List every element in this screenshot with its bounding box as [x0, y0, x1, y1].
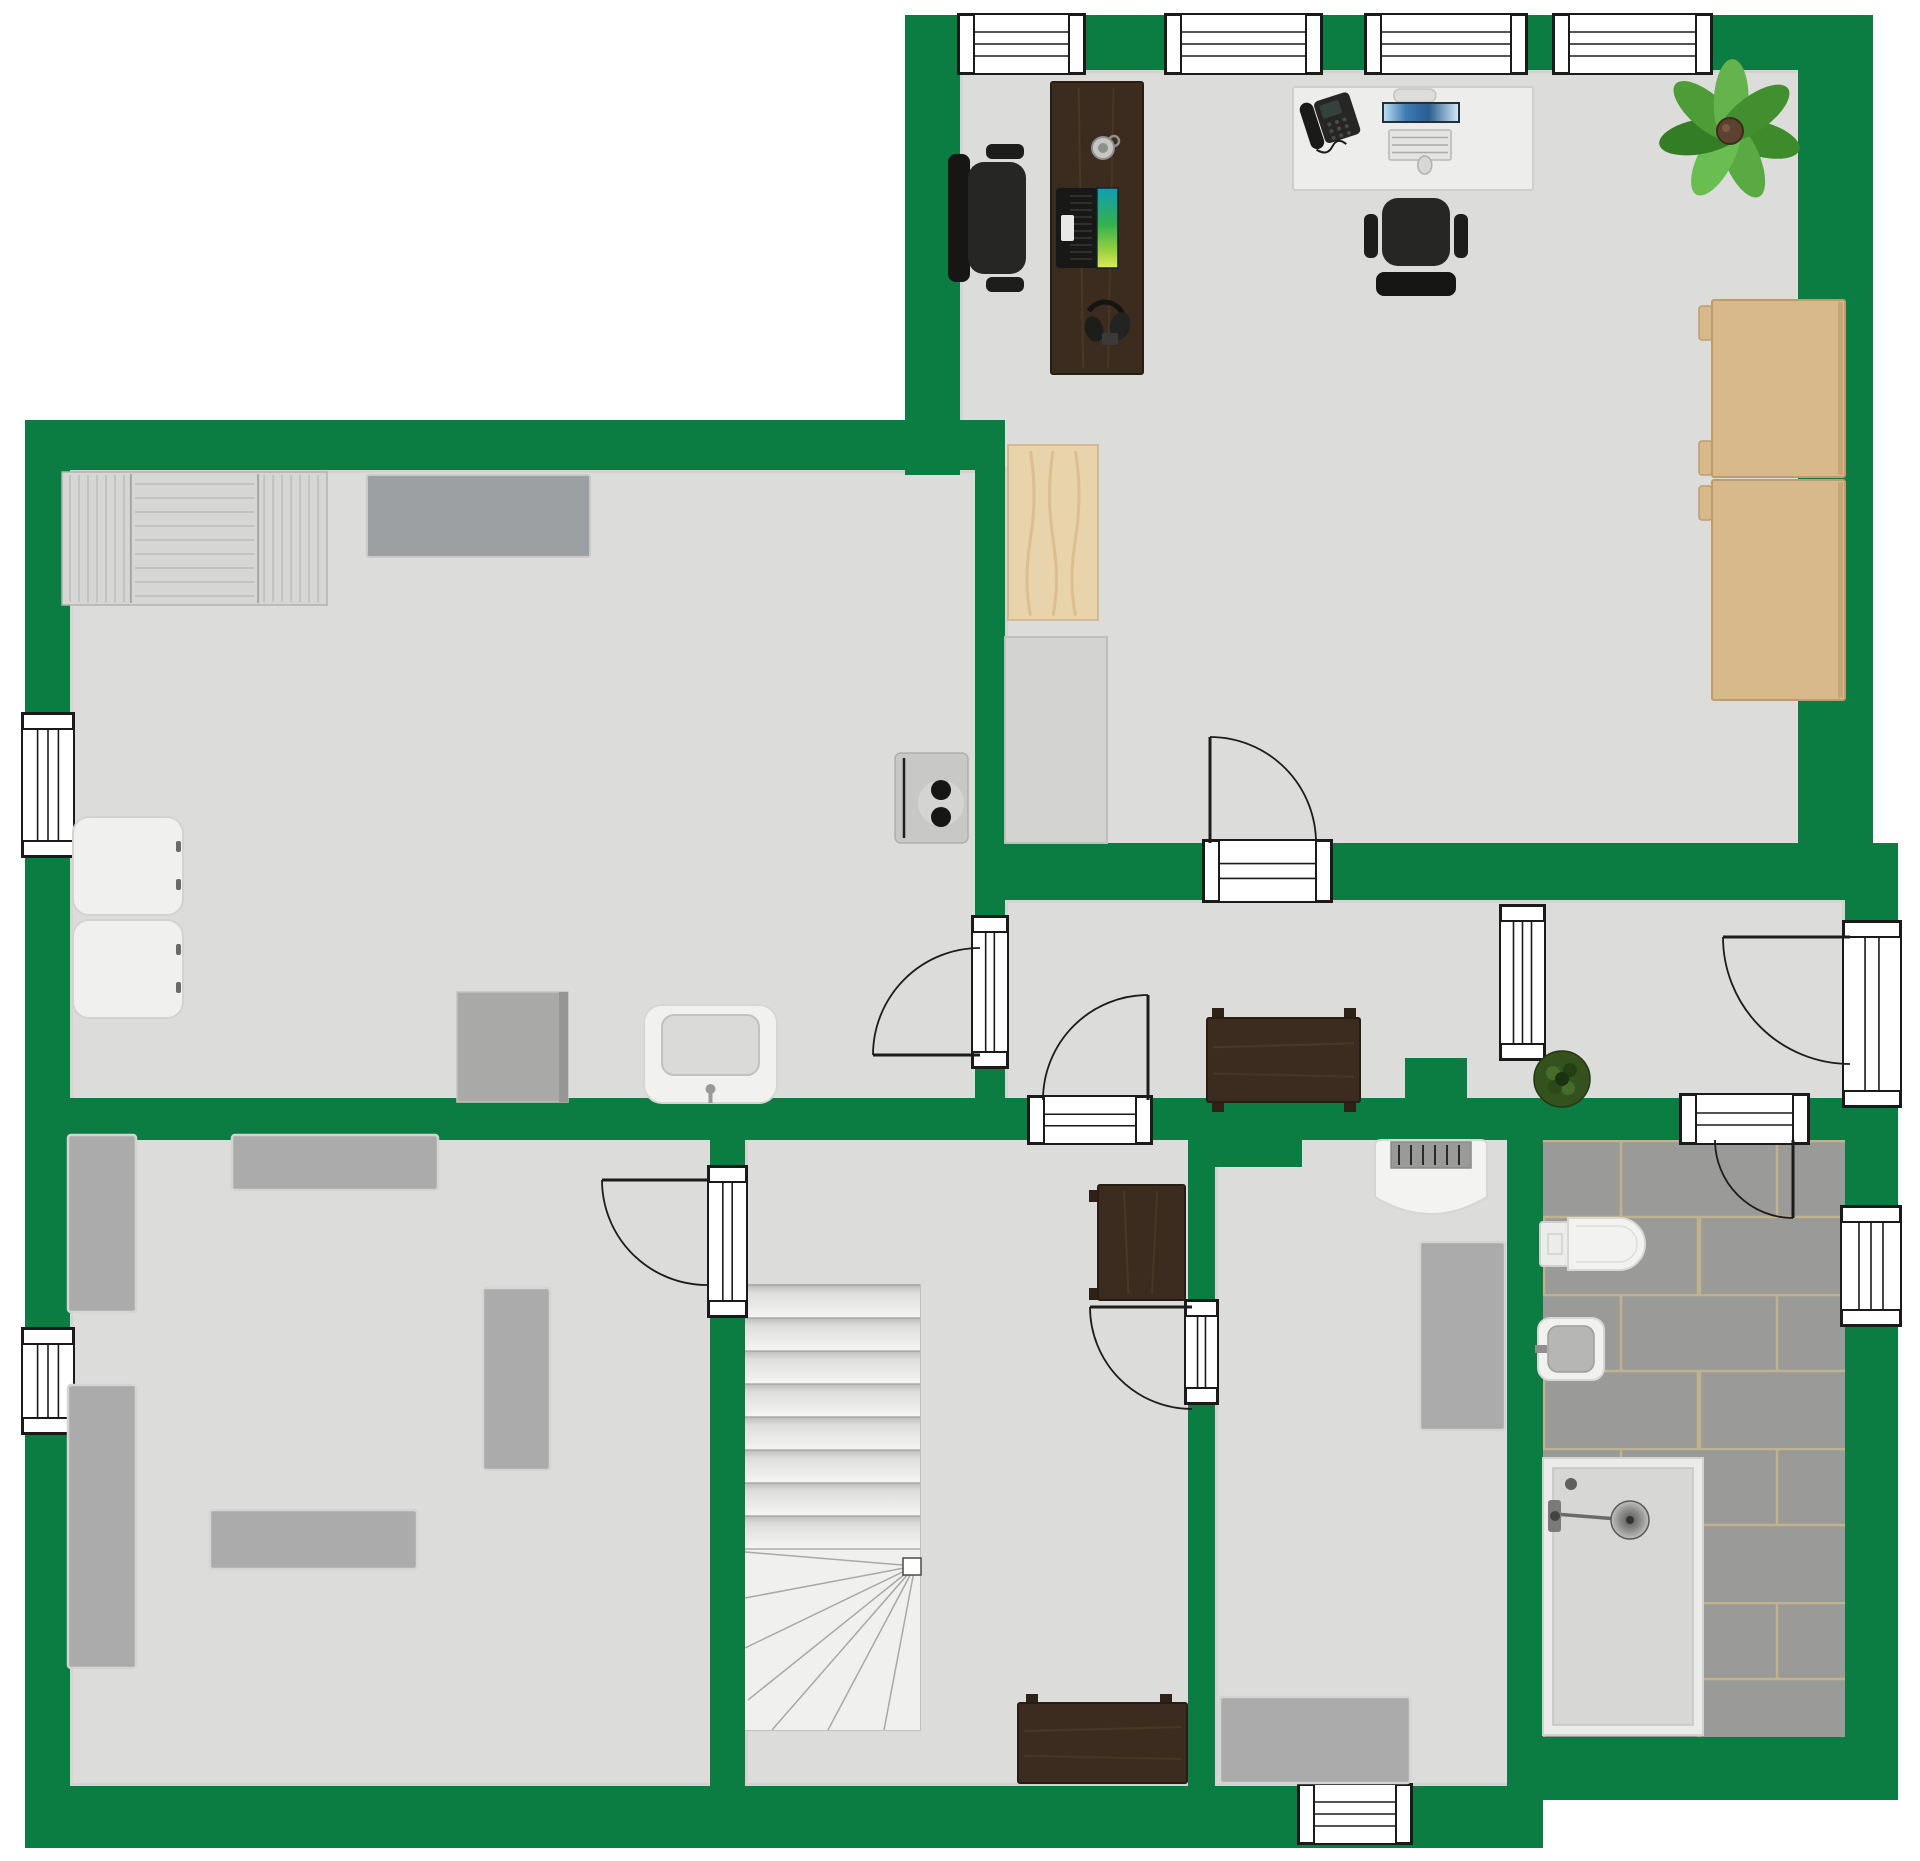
- small-room-cabinet-1: [1420, 1242, 1505, 1430]
- window-top-2: [1165, 14, 1322, 74]
- wardrobe-lower: [1699, 480, 1845, 700]
- stair-newel: [903, 1558, 921, 1575]
- washer-latch-icon: [176, 944, 181, 955]
- toilet: [1540, 1218, 1645, 1270]
- bedroom-cabinet-1: [68, 1135, 136, 1312]
- hallway-top-wall: [1005, 843, 1898, 900]
- section-wall: [25, 1098, 1898, 1140]
- small-room-floor: [1215, 1135, 1543, 1786]
- utility-door-threshold-frame: [972, 916, 1008, 1068]
- laptop-screen: [1097, 188, 1118, 268]
- small-room-door-threshold: [1185, 1300, 1218, 1404]
- cable-slot: [1394, 89, 1436, 102]
- office-door-threshold: [1203, 840, 1332, 902]
- bath-sink: [1535, 1318, 1604, 1380]
- wall-jog: [1215, 1140, 1302, 1167]
- bathroom-door-threshold-frame: [1680, 1094, 1809, 1144]
- window-bottom: [1298, 1784, 1412, 1844]
- bedroom-cabinet-2: [232, 1135, 438, 1190]
- laptop: [1056, 188, 1118, 268]
- chair-back: [948, 154, 970, 282]
- washer-lower: [73, 920, 183, 1018]
- stair-room-door-threshold: [1028, 1096, 1152, 1144]
- sideboard: [367, 475, 590, 557]
- touchpad: [1061, 215, 1074, 241]
- console-table: [1207, 1008, 1360, 1112]
- bedroom-cabinet-3: [68, 1385, 136, 1668]
- front-door-threshold: [1843, 921, 1901, 1107]
- window-left-bedroom: [22, 1328, 74, 1434]
- utility-top-wall: [25, 420, 1005, 470]
- stair-desk-upper: [1089, 1185, 1185, 1300]
- chair-back: [1376, 272, 1456, 296]
- wardrobe-upper: [1699, 300, 1845, 477]
- washer-latch-icon: [176, 841, 181, 852]
- stair-tread: [745, 1483, 920, 1516]
- window-top-4: [1553, 14, 1712, 74]
- bedroom-door-threshold-frame: [708, 1166, 747, 1317]
- stair-tread: [745, 1417, 920, 1450]
- bedroom-cabinet-5: [210, 1510, 417, 1569]
- monitor-screen: [1383, 103, 1459, 122]
- sink-basin: [1548, 1326, 1594, 1372]
- stair-tread: [745, 1516, 920, 1549]
- utility-door-threshold: [972, 916, 1008, 1068]
- hall-plant: [1534, 1051, 1591, 1108]
- window-left-upper: [22, 713, 74, 857]
- wood-board: [1008, 445, 1098, 620]
- bedroom-cabinet-4: [483, 1288, 550, 1470]
- bathroom-bottom-wall: [1510, 1737, 1898, 1800]
- floor-plan: [0, 0, 1920, 1861]
- small-cabinet: [457, 992, 568, 1102]
- floor-plan-page: [0, 0, 1920, 1861]
- window-bathroom: [1841, 1206, 1901, 1326]
- utility-sink: [644, 1005, 777, 1103]
- window-top-3: [1365, 14, 1527, 74]
- toilet-tank: [1540, 1222, 1570, 1266]
- sink-basin: [662, 1015, 759, 1075]
- stair-tread: [745, 1351, 920, 1384]
- stair-tread: [745, 1450, 920, 1483]
- mouse: [1418, 156, 1432, 174]
- front-door-threshold-frame: [1843, 921, 1901, 1107]
- drying-rack: [62, 472, 327, 605]
- boiler: [895, 753, 968, 843]
- small-room-cabinet-2: [1220, 1697, 1410, 1783]
- stair-tread: [745, 1384, 920, 1417]
- open-wardrobe: [1375, 1140, 1487, 1214]
- stair-tread: [745, 1285, 920, 1318]
- window-top-1: [958, 14, 1085, 74]
- office-door-threshold-frame: [1203, 840, 1332, 902]
- faucet-icon: [1535, 1345, 1547, 1353]
- drain-icon: [1565, 1478, 1577, 1490]
- office-chair-left: [948, 144, 1026, 292]
- staircase: [745, 1285, 921, 1730]
- bedroom-door-threshold: [708, 1166, 747, 1317]
- socket-icon: [931, 780, 951, 800]
- bedroom-floor: [70, 1135, 745, 1786]
- stair-divider-wall: [1188, 1135, 1215, 1786]
- hall-partition-window: [1500, 905, 1545, 1060]
- stair-tread: [745, 1318, 920, 1351]
- washer-upper: [73, 817, 183, 915]
- stair-desk-lower: [1018, 1694, 1187, 1783]
- chair-seat: [1382, 198, 1450, 266]
- bathroom-door-threshold: [1680, 1094, 1809, 1144]
- chair-seat: [968, 162, 1026, 274]
- shower: [1543, 1458, 1703, 1735]
- hall-stub-wall: [1405, 1058, 1467, 1140]
- stair-room-door-threshold-frame: [1028, 1096, 1152, 1144]
- bathroom-divider-wall: [1507, 1135, 1543, 1786]
- counter: [1005, 637, 1107, 843]
